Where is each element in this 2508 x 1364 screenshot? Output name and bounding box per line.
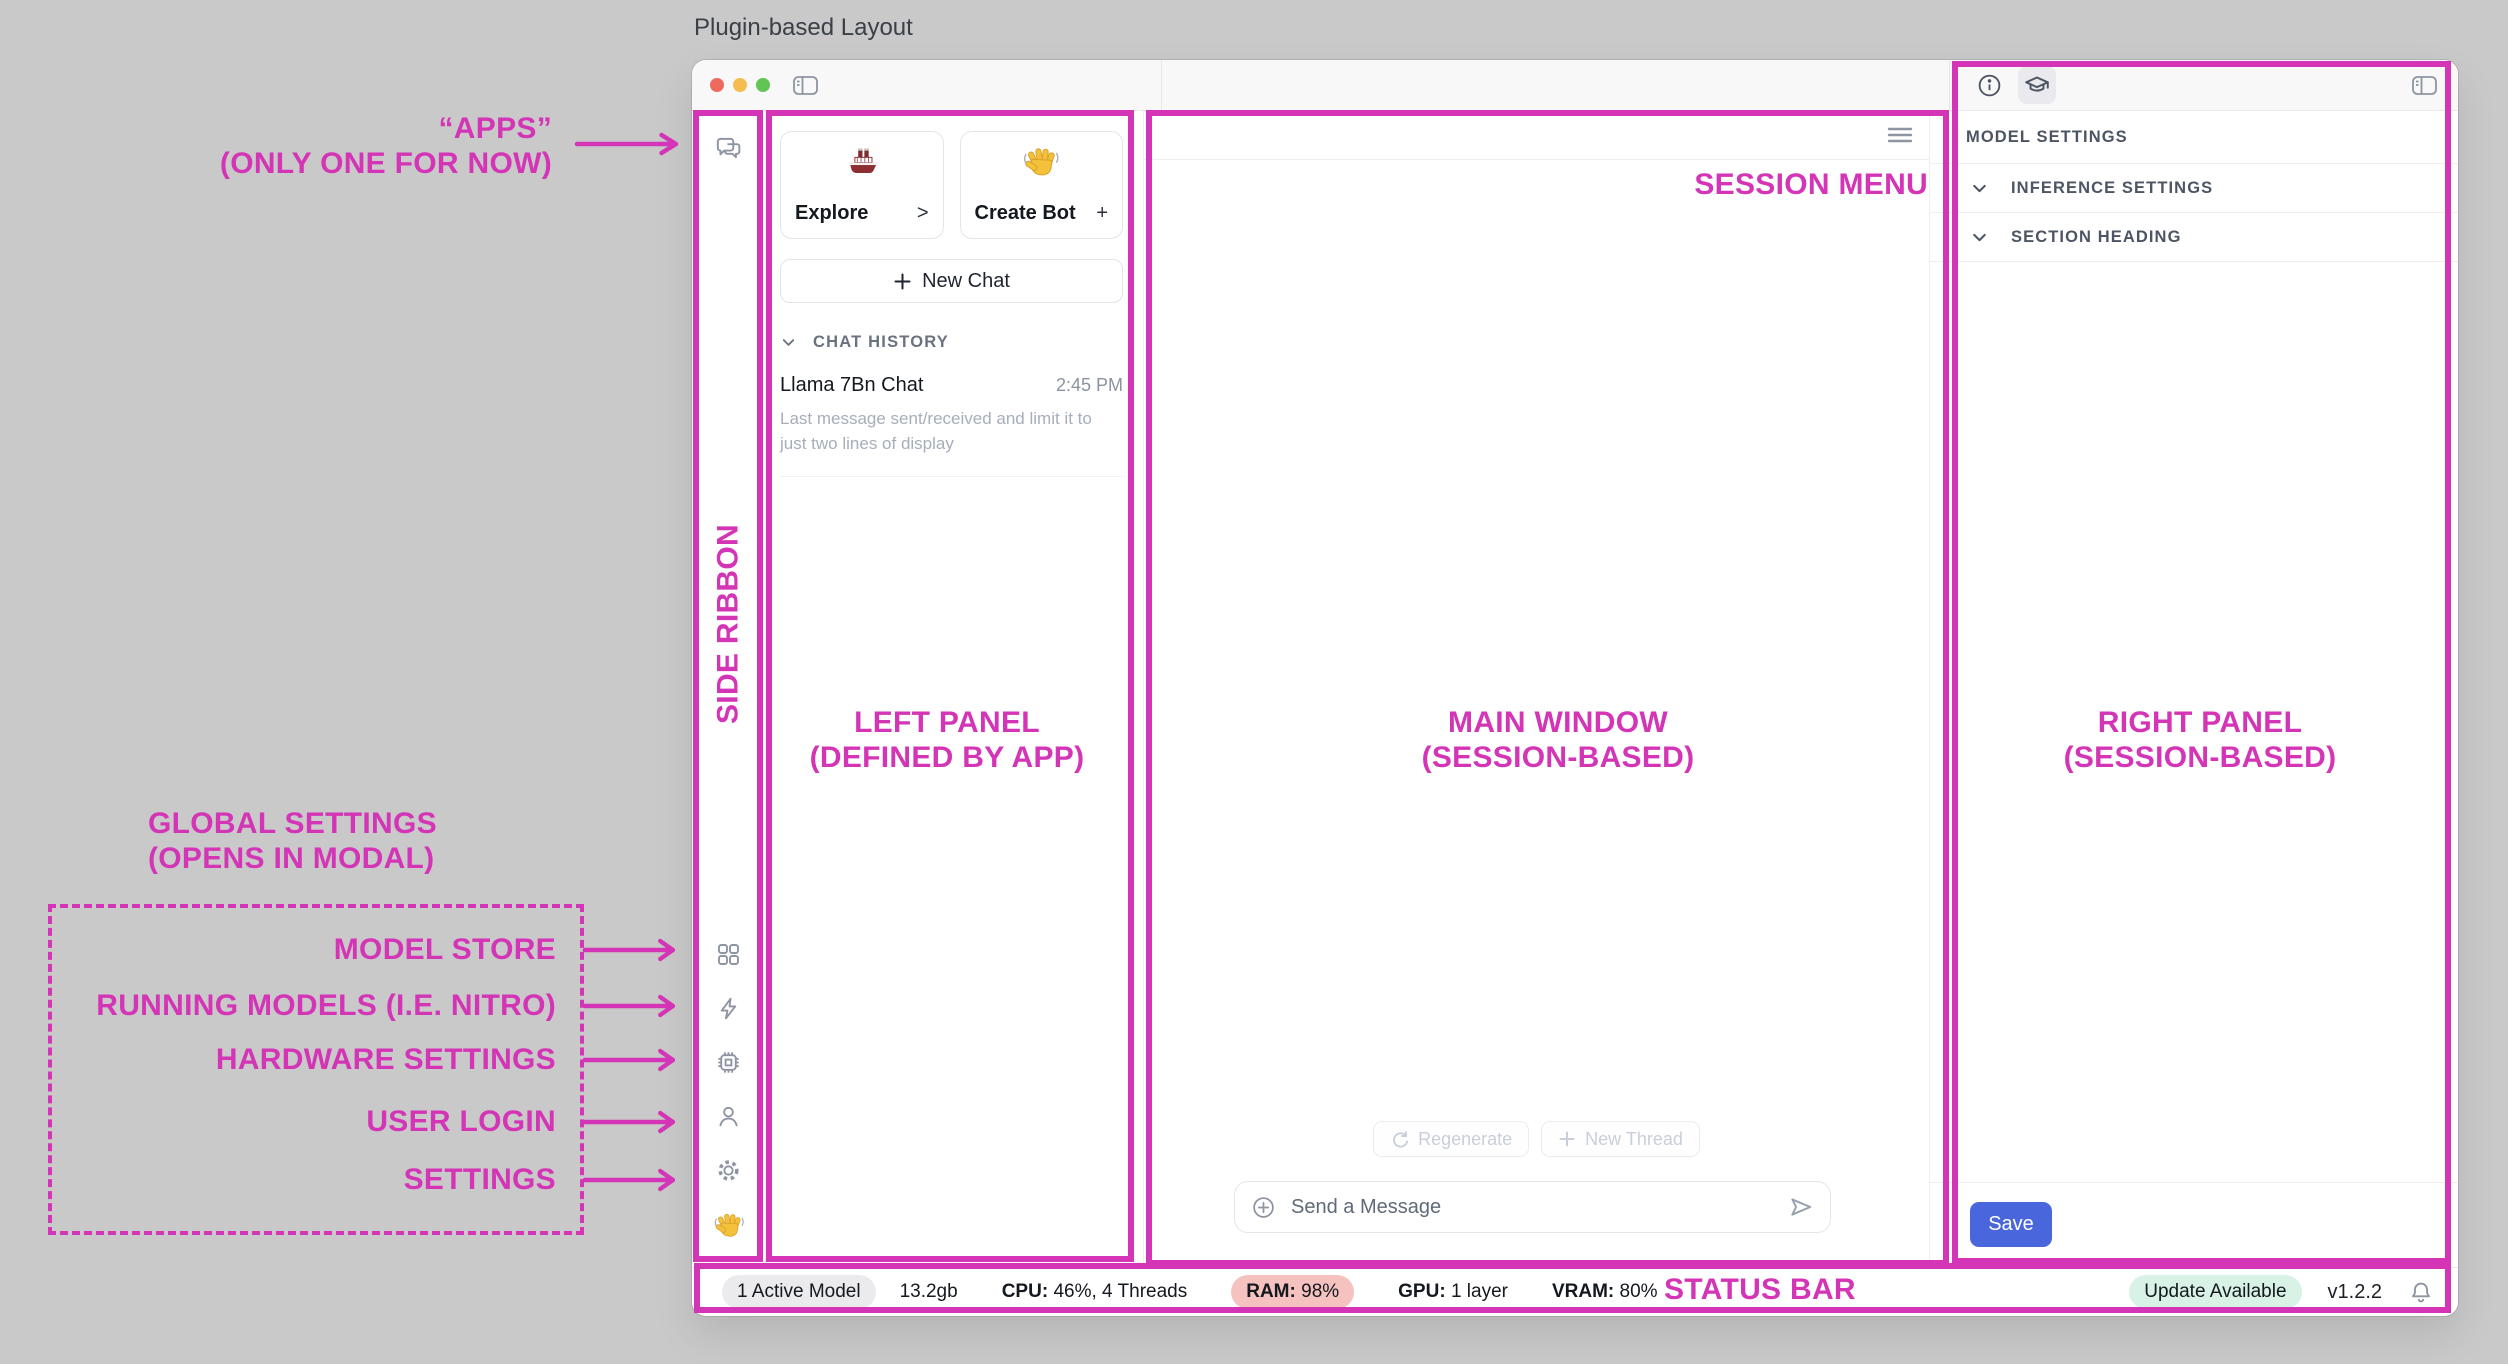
chat-history-header[interactable]: CHAT HISTORY bbox=[780, 333, 1123, 352]
left-panel: Explore > bbox=[766, 111, 1144, 1267]
titlebar-main-section bbox=[1161, 60, 1949, 110]
right-panel-annotation: RIGHT PANEL (SESSION-BASED) bbox=[2064, 705, 2337, 775]
chat-item-title: Llama 7Bn Chat bbox=[780, 374, 923, 397]
cpu-value: 46%, 4 Threads bbox=[1053, 1281, 1187, 1302]
ribbon-global-actions bbox=[713, 941, 745, 1243]
model-store-annotation: MODEL STORE bbox=[334, 932, 556, 967]
thread-actions: Regenerate New Thread bbox=[1144, 1121, 1929, 1157]
settings-arrow bbox=[582, 1167, 682, 1193]
memory-usage: 13.2gb bbox=[900, 1281, 958, 1303]
design-canvas: Plugin-based Layout bbox=[0, 0, 2508, 1364]
status-bar: 1 Active Model 13.2gb CPU: 46%, 4 Thread… bbox=[692, 1267, 2458, 1316]
active-model-badge[interactable]: 1 Active Model bbox=[722, 1275, 876, 1309]
user-login-icon[interactable] bbox=[715, 1103, 742, 1130]
save-button[interactable]: Save bbox=[1970, 1202, 2052, 1247]
chat-history-label: CHAT HISTORY bbox=[813, 333, 949, 352]
right-panel-footer: Save bbox=[1930, 1182, 2458, 1267]
main-window-annotation: MAIN WINDOW (SESSION-BASED) bbox=[1422, 705, 1695, 775]
regenerate-button[interactable]: Regenerate bbox=[1373, 1121, 1529, 1157]
send-icon[interactable] bbox=[1788, 1194, 1814, 1220]
explore-card-chevron: > bbox=[917, 202, 929, 225]
traffic-lights bbox=[710, 78, 770, 92]
window-titlebar bbox=[692, 60, 2458, 111]
running-models-icon[interactable] bbox=[715, 995, 742, 1022]
chevron-down-icon bbox=[1970, 179, 1989, 198]
info-tab-button[interactable] bbox=[1970, 66, 2008, 104]
chat-item-preview: Last message sent/received and limit it … bbox=[780, 406, 1116, 456]
chat-history-item[interactable]: Llama 7Bn Chat 2:45 PM Last message sent… bbox=[780, 374, 1123, 477]
right-panel: MODEL SETTINGS INFERENCE SETTINGS bbox=[1929, 111, 2458, 1267]
model-settings-tab-button[interactable] bbox=[2018, 66, 2056, 104]
vram-usage: VRAM: 80% bbox=[1552, 1281, 1658, 1303]
section-heading-label: SECTION HEADING bbox=[2011, 228, 2182, 247]
new-thread-button[interactable]: New Thread bbox=[1541, 1121, 1700, 1157]
right-panel-header bbox=[1949, 60, 2458, 110]
plus-icon bbox=[1558, 1130, 1576, 1148]
app-cards: Explore > bbox=[780, 131, 1123, 239]
settings-annotation: SETTINGS bbox=[404, 1162, 556, 1197]
wave-icon bbox=[975, 145, 1109, 183]
app-version: v1.2.2 bbox=[2328, 1281, 2382, 1304]
create-bot-card[interactable]: Create Bot + bbox=[960, 131, 1124, 239]
refresh-icon bbox=[1390, 1130, 1409, 1149]
new-chat-button[interactable]: New Chat bbox=[780, 259, 1123, 303]
update-available-badge[interactable]: Update Available bbox=[2129, 1275, 2301, 1309]
chat-item-time: 2:45 PM bbox=[1056, 375, 1123, 396]
message-composer bbox=[1234, 1181, 1831, 1233]
session-menu-icon[interactable] bbox=[1887, 124, 1913, 146]
hardware-settings-annotation: HARDWARE SETTINGS bbox=[216, 1042, 556, 1077]
gpu-label: GPU: bbox=[1398, 1281, 1446, 1302]
create-bot-card-plus: + bbox=[1096, 202, 1108, 225]
ram-label: RAM: bbox=[1246, 1281, 1296, 1302]
cpu-label: CPU: bbox=[1002, 1281, 1048, 1302]
left-panel-annotation: LEFT PANEL (DEFINED BY APP) bbox=[810, 705, 1085, 775]
hardware-settings-icon[interactable] bbox=[715, 1049, 742, 1076]
inference-settings-row[interactable]: INFERENCE SETTINGS bbox=[1930, 164, 2458, 213]
window-content: Explore > bbox=[692, 111, 2458, 1267]
new-chat-label: New Chat bbox=[922, 270, 1010, 293]
gpu-value: 1 layer bbox=[1451, 1281, 1508, 1302]
regenerate-label: Regenerate bbox=[1418, 1129, 1512, 1150]
gpu-usage: GPU: 1 layer bbox=[1398, 1281, 1508, 1303]
session-menu-annotation: SESSION MENU bbox=[1694, 167, 1928, 202]
notifications-bell-icon[interactable] bbox=[2408, 1279, 2434, 1305]
global-settings-annotation: GLOBAL SETTINGS (OPENS IN MODAL) bbox=[148, 806, 437, 876]
inference-settings-label: INFERENCE SETTINGS bbox=[2011, 179, 2213, 198]
running-models-annotation: RUNNING MODELS (I.E. NITRO) bbox=[96, 988, 556, 1023]
model-store-icon[interactable] bbox=[715, 941, 742, 968]
ram-value: 98% bbox=[1301, 1281, 1339, 1302]
apps-arrow bbox=[574, 131, 686, 157]
side-ribbon-annotation: SIDE RIBBON bbox=[711, 524, 746, 724]
running-models-arrow bbox=[582, 993, 682, 1019]
new-thread-label: New Thread bbox=[1585, 1129, 1683, 1150]
model-settings-row: MODEL SETTINGS bbox=[1930, 111, 2458, 164]
zoom-window-button[interactable] bbox=[756, 78, 770, 92]
session-header bbox=[1144, 111, 1929, 160]
vram-label: VRAM: bbox=[1552, 1281, 1614, 1302]
user-login-annotation: USER LOGIN bbox=[366, 1104, 556, 1139]
explore-card[interactable]: Explore > bbox=[780, 131, 944, 239]
explore-card-label: Explore bbox=[795, 202, 868, 225]
settings-gear-icon[interactable] bbox=[715, 1157, 742, 1184]
close-window-button[interactable] bbox=[710, 78, 724, 92]
attach-plus-circle-icon[interactable] bbox=[1251, 1195, 1276, 1220]
chevron-down-icon bbox=[780, 334, 797, 351]
chevron-down-icon bbox=[1970, 228, 1989, 247]
titlebar-left bbox=[692, 60, 1161, 110]
section-heading-row[interactable]: SECTION HEADING bbox=[1930, 213, 2458, 262]
status-bar-annotation: STATUS BAR bbox=[1664, 1272, 1856, 1307]
minimize-window-button[interactable] bbox=[733, 78, 747, 92]
message-input[interactable] bbox=[1289, 1195, 1775, 1220]
app-window: Explore > bbox=[692, 60, 2458, 1316]
wave-icon[interactable] bbox=[713, 1211, 745, 1243]
model-store-arrow bbox=[582, 937, 682, 963]
status-bar-right: Update Available v1.2.2 bbox=[2129, 1275, 2434, 1309]
ship-icon bbox=[795, 145, 929, 183]
cpu-usage: CPU: 46%, 4 Threads bbox=[1002, 1281, 1188, 1303]
page-title: Plugin-based Layout bbox=[694, 14, 913, 42]
user-login-arrow bbox=[582, 1109, 682, 1135]
plus-icon bbox=[893, 272, 912, 291]
toggle-right-sidebar-icon[interactable] bbox=[2411, 74, 2438, 97]
model-settings-label: MODEL SETTINGS bbox=[1966, 128, 2128, 147]
vram-value: 80% bbox=[1620, 1281, 1658, 1302]
ram-usage-badge: RAM: 98% bbox=[1231, 1275, 1354, 1309]
create-bot-card-label: Create Bot bbox=[975, 202, 1076, 225]
apps-annotation: “APPS” (ONLY ONE FOR NOW) bbox=[220, 111, 552, 181]
hardware-settings-arrow bbox=[582, 1047, 682, 1073]
toggle-left-sidebar-icon[interactable] bbox=[792, 74, 819, 97]
main-window: Regenerate New Thread bbox=[1144, 111, 1929, 1267]
chat-app-icon[interactable] bbox=[713, 133, 745, 165]
